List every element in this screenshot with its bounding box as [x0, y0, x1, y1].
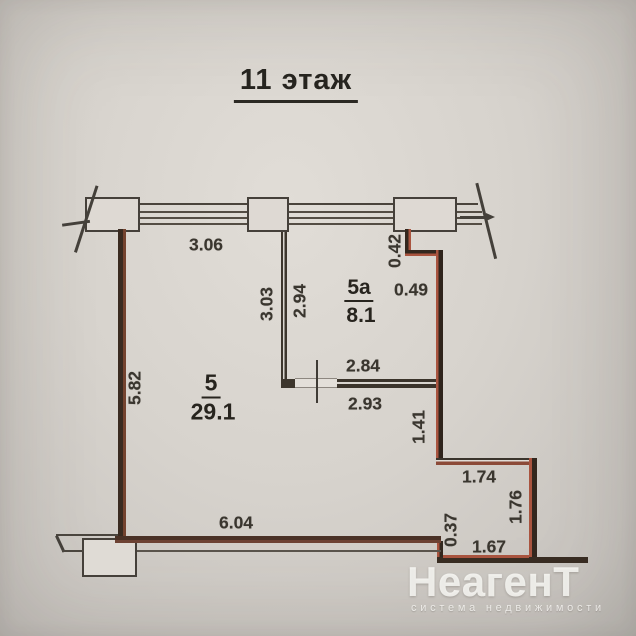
dim-top-wall: 3.06 — [189, 235, 223, 256]
dim-partition-room5a-side: 2.94 — [290, 284, 311, 318]
wall-pier-left — [85, 197, 140, 232]
dim-partition-room5-side: 3.03 — [257, 287, 278, 321]
dim-bottom-step-horizontal: 1.67 — [472, 537, 506, 558]
window-middle — [289, 205, 393, 229]
dim-right-step-vertical: 1.76 — [506, 490, 527, 524]
wall-pier-right — [393, 197, 457, 232]
dim-top-step-horizontal: 0.49 — [394, 280, 428, 301]
room5-area: 29.1 — [191, 399, 236, 426]
right-wall — [436, 250, 443, 464]
dim-bottom-step-vertical: 0.37 — [441, 513, 462, 547]
room5-number: 5 — [202, 370, 221, 399]
dim-room5a-bottom-outer: 2.93 — [348, 394, 382, 415]
wall-pier-middle — [247, 197, 289, 232]
dim-right-step-horizontal: 1.74 — [462, 467, 496, 488]
window-left — [140, 205, 247, 229]
floorplan-scan: 11 этаж 5 29.1 5а 8.1 3.06 0.42 0.49 3.0… — [0, 0, 636, 636]
partition-horizontal — [337, 379, 440, 388]
dim-top-step-vertical: 0.42 — [385, 234, 406, 268]
break-line-bottom-left-top — [56, 534, 118, 536]
right-step-vertical-wall — [529, 458, 537, 563]
break-arrow-top-right — [486, 213, 495, 221]
dim-bottom-wall: 6.04 — [219, 513, 253, 534]
partition-vertical — [281, 232, 287, 382]
survey-cross-mark — [316, 360, 318, 403]
watermark-brand: НеагенТ — [407, 558, 579, 606]
room5a-number: 5а — [344, 276, 373, 302]
dim-left-wall: 5.82 — [125, 371, 146, 405]
bottom-wall-inner-line — [137, 550, 441, 552]
dim-room5a-bottom-inner: 2.84 — [346, 356, 380, 377]
bottom-left-pillar — [82, 538, 137, 577]
watermark-tagline: система недвижимости — [411, 602, 605, 614]
dim-right-wall-lower: 1.41 — [409, 410, 430, 444]
break-line-bottom-left-bottom — [62, 550, 84, 552]
bottom-wall-main-line — [115, 536, 441, 543]
floor-title: 11 этаж — [234, 64, 358, 103]
right-step-horizontal-wall — [436, 458, 536, 465]
partition-horizontal-stub — [281, 379, 295, 388]
room5a-area: 8.1 — [346, 304, 375, 328]
